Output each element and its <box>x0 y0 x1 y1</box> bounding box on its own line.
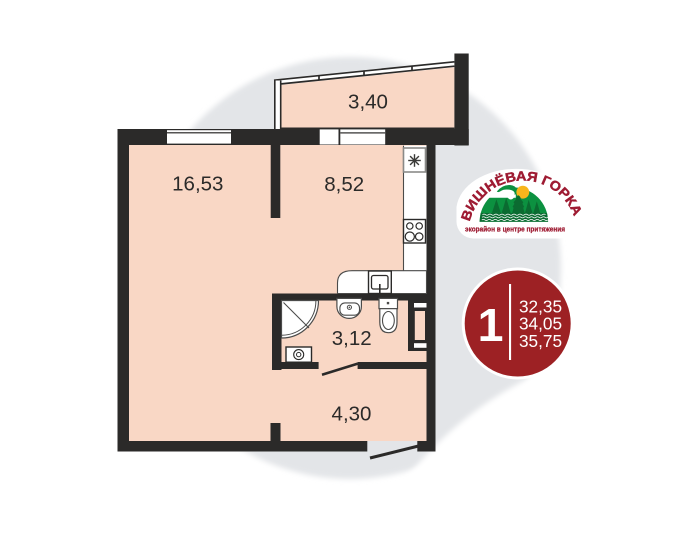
svg-text:35,75: 35,75 <box>519 331 562 351</box>
svg-text:8,52: 8,52 <box>324 173 364 196</box>
svg-text:экорайон в центре притяжения: экорайон в центре притяжения <box>465 224 565 233</box>
svg-text:3,12: 3,12 <box>332 327 372 350</box>
svg-text:3,40: 3,40 <box>348 91 388 114</box>
svg-text:4,30: 4,30 <box>332 403 372 426</box>
svg-text:1: 1 <box>478 299 504 351</box>
svg-text:16,53: 16,53 <box>172 173 223 196</box>
